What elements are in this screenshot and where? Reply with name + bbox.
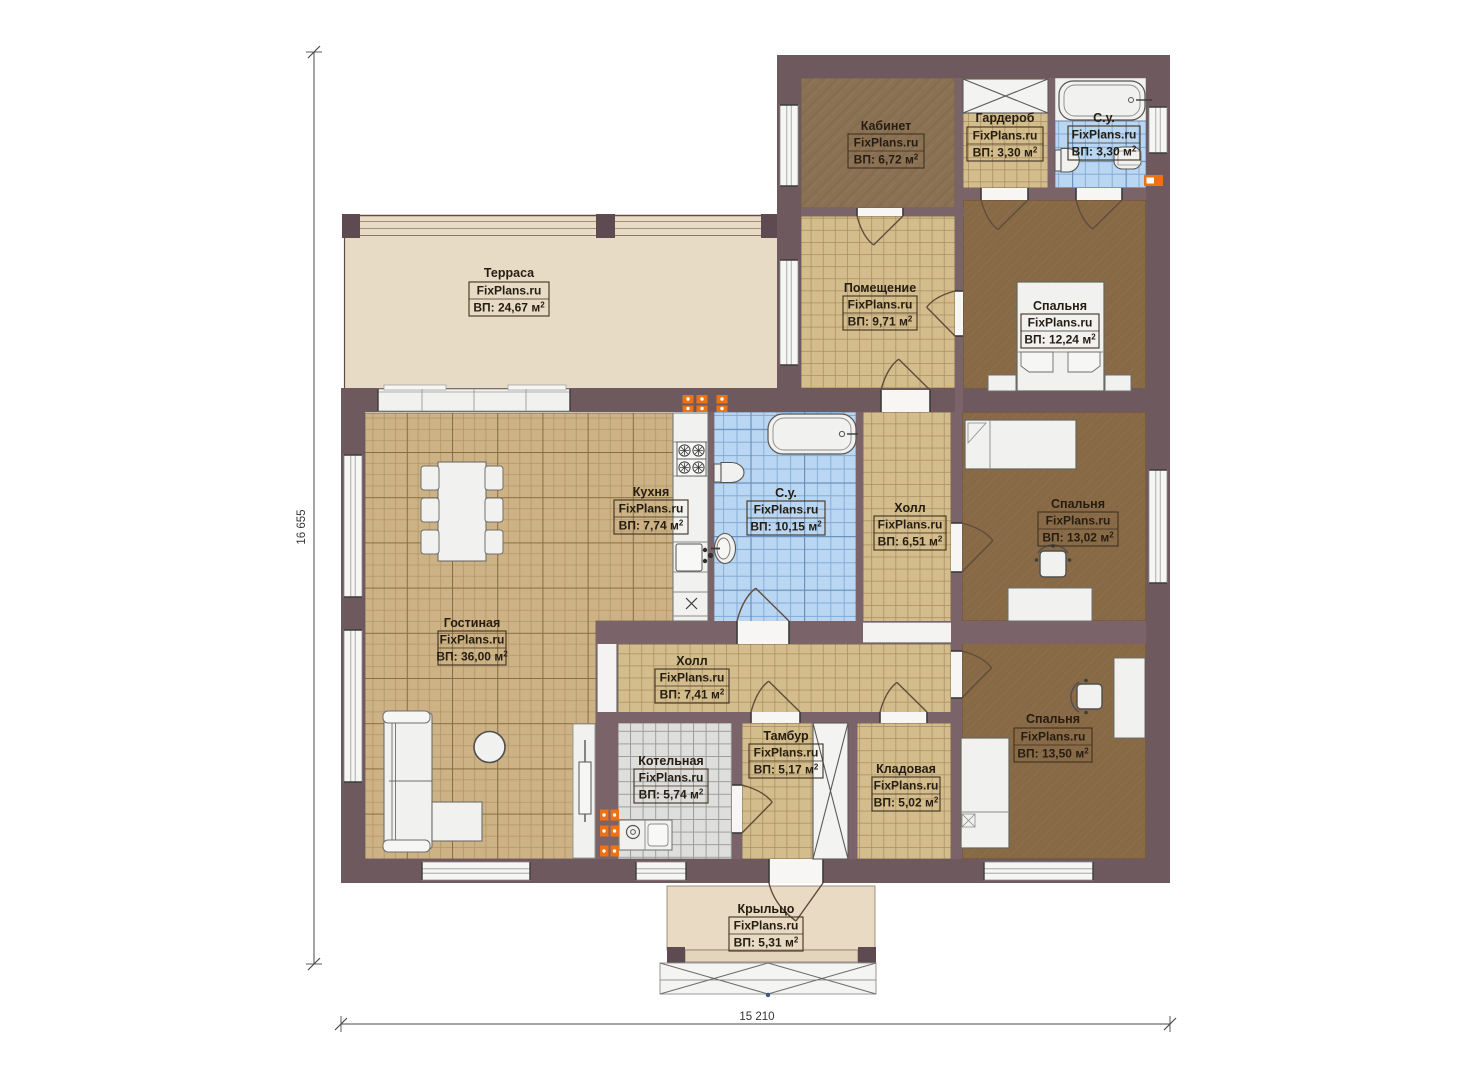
svg-text:ВП: 24,67 м2: ВП: 24,67 м2 [473,301,545,315]
svg-text:15 210: 15 210 [739,1011,774,1023]
svg-text:Тамбур: Тамбур [763,729,809,743]
svg-text:ВП: 5,31 м2: ВП: 5,31 м2 [734,936,799,950]
svg-text:ВП: 3,30 м2: ВП: 3,30 м2 [973,146,1038,160]
svg-text:ВП: 13,50 м2: ВП: 13,50 м2 [1017,747,1089,761]
svg-text:ВП: 12,24 м2: ВП: 12,24 м2 [1024,333,1096,347]
svg-text:ВП: 5,17 м2: ВП: 5,17 м2 [754,763,819,777]
svg-text:FixPlans.ru: FixPlans.ru [754,503,819,517]
svg-text:FixPlans.ru: FixPlans.ru [660,671,725,685]
svg-text:Кладовая: Кладовая [876,762,936,776]
svg-text:FixPlans.ru: FixPlans.ru [477,284,542,298]
svg-text:ВП: 6,72 м2: ВП: 6,72 м2 [854,153,919,167]
svg-text:16 655: 16 655 [296,509,308,544]
svg-text:Спальня: Спальня [1051,497,1105,511]
svg-text:С.у.: С.у. [1093,111,1115,125]
svg-text:С.у.: С.у. [775,486,797,500]
svg-text:Спальня: Спальня [1026,712,1080,726]
svg-text:Терраса: Терраса [484,266,535,280]
svg-text:Холл: Холл [894,501,925,515]
svg-text:Холл: Холл [676,654,707,668]
svg-text:FixPlans.ru: FixPlans.ru [734,919,799,933]
svg-text:FixPlans.ru: FixPlans.ru [619,502,684,516]
svg-text:FixPlans.ru: FixPlans.ru [973,129,1038,143]
svg-text:ВП: 7,41 м2: ВП: 7,41 м2 [660,688,725,702]
svg-text:FixPlans.ru: FixPlans.ru [1072,128,1137,142]
svg-text:Гостиная: Гостиная [444,616,501,630]
svg-text:Гардероб: Гардероб [975,111,1034,125]
svg-text:FixPlans.ru: FixPlans.ru [639,771,704,785]
svg-text:FixPlans.ru: FixPlans.ru [754,746,819,760]
svg-text:Кабинет: Кабинет [861,119,912,133]
svg-text:ВП: 13,02 м2: ВП: 13,02 м2 [1042,531,1114,545]
svg-text:Кухня: Кухня [633,485,670,499]
svg-text:Помещение: Помещение [844,281,916,295]
svg-text:FixPlans.ru: FixPlans.ru [1046,514,1111,528]
svg-text:ВП: 5,74 м2: ВП: 5,74 м2 [639,788,704,802]
svg-text:FixPlans.ru: FixPlans.ru [848,298,913,312]
svg-text:FixPlans.ru: FixPlans.ru [440,633,505,647]
svg-text:FixPlans.ru: FixPlans.ru [874,779,939,793]
svg-text:Котельная: Котельная [638,754,703,768]
svg-text:ВП: 5,02 м2: ВП: 5,02 м2 [874,796,939,810]
svg-text:ВП: 7,74 м2: ВП: 7,74 м2 [619,519,684,533]
svg-text:ВП: 9,71 м2: ВП: 9,71 м2 [848,315,913,329]
svg-text:Спальня: Спальня [1033,299,1087,313]
svg-text:FixPlans.ru: FixPlans.ru [1021,730,1086,744]
svg-text:ВП: 10,15 м2: ВП: 10,15 м2 [750,520,822,534]
svg-text:ВП: 6,51 м2: ВП: 6,51 м2 [878,535,943,549]
svg-text:Крыльцо: Крыльцо [738,902,795,916]
svg-text:FixPlans.ru: FixPlans.ru [854,136,919,150]
svg-text:ВП: 3,30 м2: ВП: 3,30 м2 [1072,145,1137,159]
svg-text:FixPlans.ru: FixPlans.ru [878,518,943,532]
svg-text:ВП: 36,00 м2: ВП: 36,00 м2 [436,650,508,664]
svg-text:FixPlans.ru: FixPlans.ru [1028,316,1093,330]
